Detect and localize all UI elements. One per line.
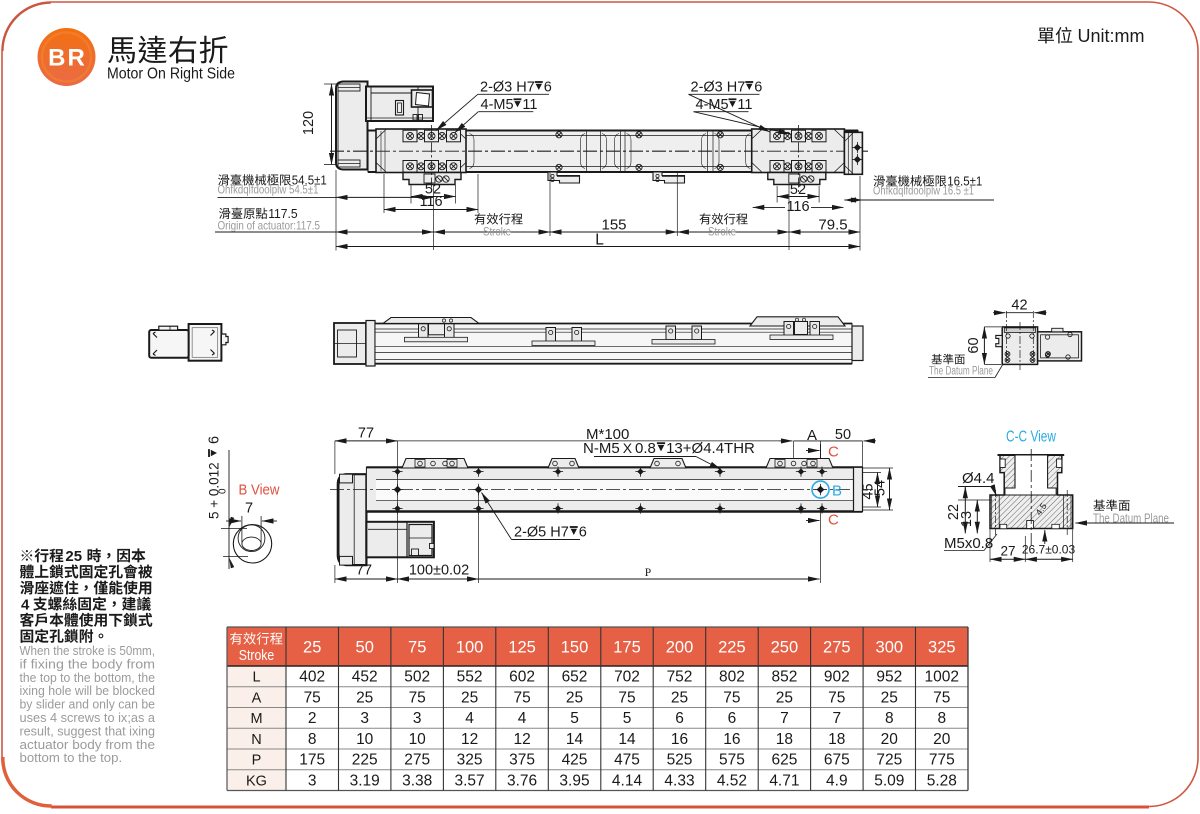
svg-text:C-C View: C-C View xyxy=(1006,429,1057,446)
svg-text:27: 27 xyxy=(1000,544,1015,559)
svg-text:25: 25 xyxy=(461,689,478,706)
svg-text:75: 75 xyxy=(723,689,740,706)
svg-text:Stroke: Stroke xyxy=(239,648,275,664)
svg-text:2-Ø5 H7: 2-Ø5 H7 xyxy=(514,525,569,541)
svg-text:75: 75 xyxy=(828,689,845,706)
svg-text:P: P xyxy=(645,567,651,579)
svg-text:25: 25 xyxy=(671,689,688,706)
svg-text:X: X xyxy=(623,440,633,456)
svg-text:200: 200 xyxy=(666,639,694,657)
svg-text:12: 12 xyxy=(513,731,530,748)
svg-text:552: 552 xyxy=(457,669,483,686)
svg-text:42: 42 xyxy=(1011,298,1027,314)
svg-text:54: 54 xyxy=(873,480,889,496)
svg-text:725: 725 xyxy=(876,752,902,769)
svg-text:7: 7 xyxy=(780,710,789,727)
svg-text:6: 6 xyxy=(544,80,552,96)
svg-text:502: 502 xyxy=(404,669,430,686)
svg-text:116: 116 xyxy=(786,199,809,215)
svg-text:18: 18 xyxy=(776,731,793,748)
svg-text:402: 402 xyxy=(299,669,325,686)
svg-text:4: 4 xyxy=(21,596,30,613)
svg-text:The Datum Plane: The Datum Plane xyxy=(929,366,993,378)
svg-text:75: 75 xyxy=(933,689,950,706)
svg-text:79.5: 79.5 xyxy=(818,217,847,234)
svg-text:4: 4 xyxy=(518,710,527,727)
svg-text:3.57: 3.57 xyxy=(455,772,485,789)
svg-text:150: 150 xyxy=(561,639,589,657)
svg-text:60: 60 xyxy=(966,337,982,353)
svg-text:4.71: 4.71 xyxy=(769,772,799,789)
svg-text:26.7±0.03: 26.7±0.03 xyxy=(1022,543,1076,557)
svg-text:Stroke: Stroke xyxy=(483,225,511,239)
svg-text:300: 300 xyxy=(876,639,904,657)
svg-text:275: 275 xyxy=(823,639,851,657)
svg-text:525: 525 xyxy=(667,752,693,769)
svg-text:4.14: 4.14 xyxy=(612,772,643,789)
svg-text:225: 225 xyxy=(352,752,378,769)
svg-text:4.33: 4.33 xyxy=(664,772,694,789)
svg-text:75: 75 xyxy=(408,639,426,657)
svg-text:952: 952 xyxy=(876,669,902,686)
svg-text:11: 11 xyxy=(737,97,752,113)
svg-text:16: 16 xyxy=(671,731,688,748)
svg-text:25: 25 xyxy=(566,689,583,706)
svg-text:116: 116 xyxy=(419,194,442,210)
svg-text:77: 77 xyxy=(356,563,372,579)
svg-text:752: 752 xyxy=(667,669,693,686)
svg-text:6: 6 xyxy=(207,436,223,444)
svg-text:802: 802 xyxy=(719,669,745,686)
svg-text:Stroke: Stroke xyxy=(708,225,736,239)
svg-text:5: 5 xyxy=(623,710,632,727)
svg-text:Ohfkdqlfdoolplw 16.5 ±1: Ohfkdqlfdoolplw 16.5 ±1 xyxy=(873,186,974,198)
svg-text:3.38: 3.38 xyxy=(402,772,432,789)
svg-text:KG: KG xyxy=(246,773,267,789)
svg-text:575: 575 xyxy=(719,752,745,769)
svg-text:25: 25 xyxy=(881,689,898,706)
svg-text:25: 25 xyxy=(356,689,373,706)
svg-text:L: L xyxy=(595,232,604,249)
svg-text:10: 10 xyxy=(356,731,374,748)
svg-text:3: 3 xyxy=(308,772,317,789)
svg-text:B: B xyxy=(832,483,842,500)
svg-text:8: 8 xyxy=(308,731,317,748)
svg-text:13: 13 xyxy=(959,511,975,527)
svg-text:2-Ø3 H7: 2-Ø3 H7 xyxy=(691,80,746,96)
svg-text:N: N xyxy=(251,732,261,748)
svg-text:6: 6 xyxy=(754,80,762,96)
svg-text:120: 120 xyxy=(301,111,317,135)
svg-text:6: 6 xyxy=(728,710,737,727)
svg-text:50: 50 xyxy=(356,639,374,657)
svg-text:1002: 1002 xyxy=(925,669,959,686)
svg-text:75: 75 xyxy=(513,689,530,706)
svg-text:12: 12 xyxy=(461,731,478,748)
svg-text:6: 6 xyxy=(675,710,684,727)
svg-text:775: 775 xyxy=(929,752,955,769)
svg-text:P: P xyxy=(252,753,262,769)
svg-text:3.76: 3.76 xyxy=(507,772,537,789)
svg-text:A: A xyxy=(252,690,262,706)
svg-text:4-M5: 4-M5 xyxy=(481,97,514,113)
svg-text:0.8: 0.8 xyxy=(635,440,656,457)
svg-text:125: 125 xyxy=(508,639,536,657)
svg-text:16: 16 xyxy=(723,731,740,748)
svg-text:A: A xyxy=(807,427,817,444)
svg-text:4: 4 xyxy=(465,710,474,727)
svg-text:75: 75 xyxy=(409,689,426,706)
svg-text:155: 155 xyxy=(601,217,626,234)
svg-text:702: 702 xyxy=(614,669,640,686)
svg-text:7: 7 xyxy=(245,501,253,517)
svg-text:250: 250 xyxy=(771,639,799,657)
svg-text:325: 325 xyxy=(457,752,483,769)
svg-text:100±0.02: 100±0.02 xyxy=(409,563,469,579)
svg-text:M: M xyxy=(250,711,262,727)
svg-text:452: 452 xyxy=(352,669,378,686)
svg-text:2-Ø3 H7: 2-Ø3 H7 xyxy=(480,80,535,96)
svg-text:20: 20 xyxy=(881,731,899,748)
svg-text:5.09: 5.09 xyxy=(874,772,904,789)
svg-text:225: 225 xyxy=(718,639,746,657)
svg-text:100: 100 xyxy=(456,639,484,657)
svg-text:BR: BR xyxy=(48,45,87,72)
svg-text:6: 6 xyxy=(579,525,587,541)
svg-text:4-M5: 4-M5 xyxy=(696,97,729,113)
svg-text:18: 18 xyxy=(828,731,845,748)
svg-text:14: 14 xyxy=(566,731,584,748)
svg-text:bottom to the top.: bottom to the top. xyxy=(20,750,123,765)
svg-text:902: 902 xyxy=(824,669,850,686)
svg-text:8: 8 xyxy=(937,710,946,727)
svg-text:B View: B View xyxy=(239,482,280,499)
svg-text:675: 675 xyxy=(824,752,850,769)
svg-text:C: C xyxy=(828,512,839,529)
svg-text:77: 77 xyxy=(358,426,374,442)
svg-text:175: 175 xyxy=(299,752,325,769)
svg-text:602: 602 xyxy=(509,669,535,686)
svg-text:11: 11 xyxy=(522,97,537,113)
svg-text:2: 2 xyxy=(308,710,317,727)
svg-text:375: 375 xyxy=(509,752,535,769)
svg-text:Unit:mm: Unit:mm xyxy=(1078,26,1145,46)
svg-text:3: 3 xyxy=(413,710,422,727)
svg-text:14: 14 xyxy=(618,731,636,748)
svg-text:175: 175 xyxy=(613,639,641,657)
svg-text:5: 5 xyxy=(570,710,579,727)
svg-text:13+Ø4.4THR: 13+Ø4.4THR xyxy=(666,440,755,457)
svg-text:4.52: 4.52 xyxy=(717,772,747,789)
svg-text:M5x0.8: M5x0.8 xyxy=(944,535,993,552)
svg-text:25: 25 xyxy=(303,639,321,657)
svg-text:L: L xyxy=(252,670,260,686)
svg-text:10: 10 xyxy=(409,731,427,748)
svg-text:3.19: 3.19 xyxy=(350,772,380,789)
svg-text:Ø4.4: Ø4.4 xyxy=(962,470,995,487)
svg-text:25: 25 xyxy=(65,548,82,565)
svg-text:3: 3 xyxy=(360,710,369,727)
svg-text:5.28: 5.28 xyxy=(927,772,957,789)
svg-text:7: 7 xyxy=(832,710,841,727)
svg-text:8: 8 xyxy=(885,710,894,727)
svg-text:52: 52 xyxy=(790,182,806,198)
svg-text:325: 325 xyxy=(928,639,956,657)
svg-text:625: 625 xyxy=(771,752,797,769)
svg-text:275: 275 xyxy=(404,752,430,769)
svg-text:20: 20 xyxy=(933,731,951,748)
svg-text:0: 0 xyxy=(218,488,229,494)
svg-text:C: C xyxy=(828,444,839,461)
svg-text:N-M5: N-M5 xyxy=(583,440,620,457)
svg-text:Origin of actuator:117.5: Origin of actuator:117.5 xyxy=(218,219,321,233)
svg-text:475: 475 xyxy=(614,752,640,769)
svg-text:425: 425 xyxy=(562,752,588,769)
svg-text:4.9: 4.9 xyxy=(826,772,848,789)
svg-text:652: 652 xyxy=(562,669,588,686)
svg-text:3.95: 3.95 xyxy=(559,772,589,789)
svg-text:852: 852 xyxy=(771,669,797,686)
svg-text:75: 75 xyxy=(618,689,635,706)
svg-text:Ohfkdqlfdoolplw 54.5±1: Ohfkdqlfdoolplw 54.5±1 xyxy=(218,184,319,196)
svg-text:25: 25 xyxy=(776,689,793,706)
svg-text:Motor On Right Side: Motor On Right Side xyxy=(107,66,235,83)
svg-text:75: 75 xyxy=(304,689,321,706)
